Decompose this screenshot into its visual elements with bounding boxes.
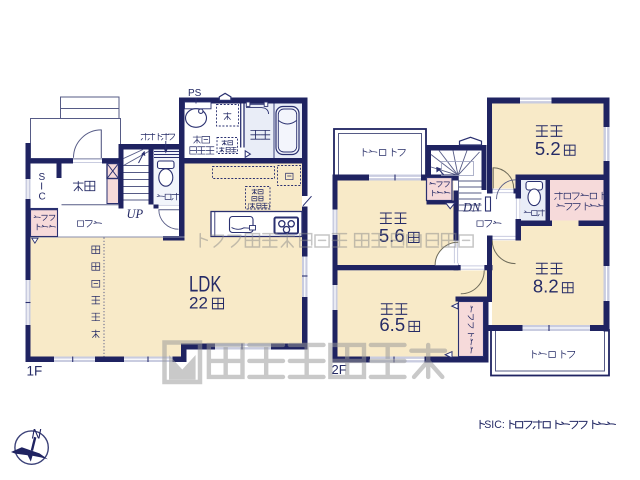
svg-text:): ): [268, 204, 270, 210]
svg-text:1F: 1F: [27, 364, 43, 379]
svg-text:DN: DN: [462, 201, 481, 215]
svg-text:2F: 2F: [332, 362, 347, 377]
svg-text:(: (: [248, 204, 250, 210]
svg-text:5.2: 5.2: [535, 138, 561, 159]
svg-text:8.2: 8.2: [533, 275, 559, 296]
svg-text:PS: PS: [188, 88, 202, 99]
svg-text:SIC:: SIC:: [484, 419, 505, 431]
svg-text:UP: UP: [127, 207, 144, 221]
svg-text:N: N: [32, 427, 42, 442]
svg-text:22: 22: [189, 294, 208, 313]
svg-text:6.5: 6.5: [379, 314, 405, 335]
svg-text:C: C: [39, 192, 46, 203]
